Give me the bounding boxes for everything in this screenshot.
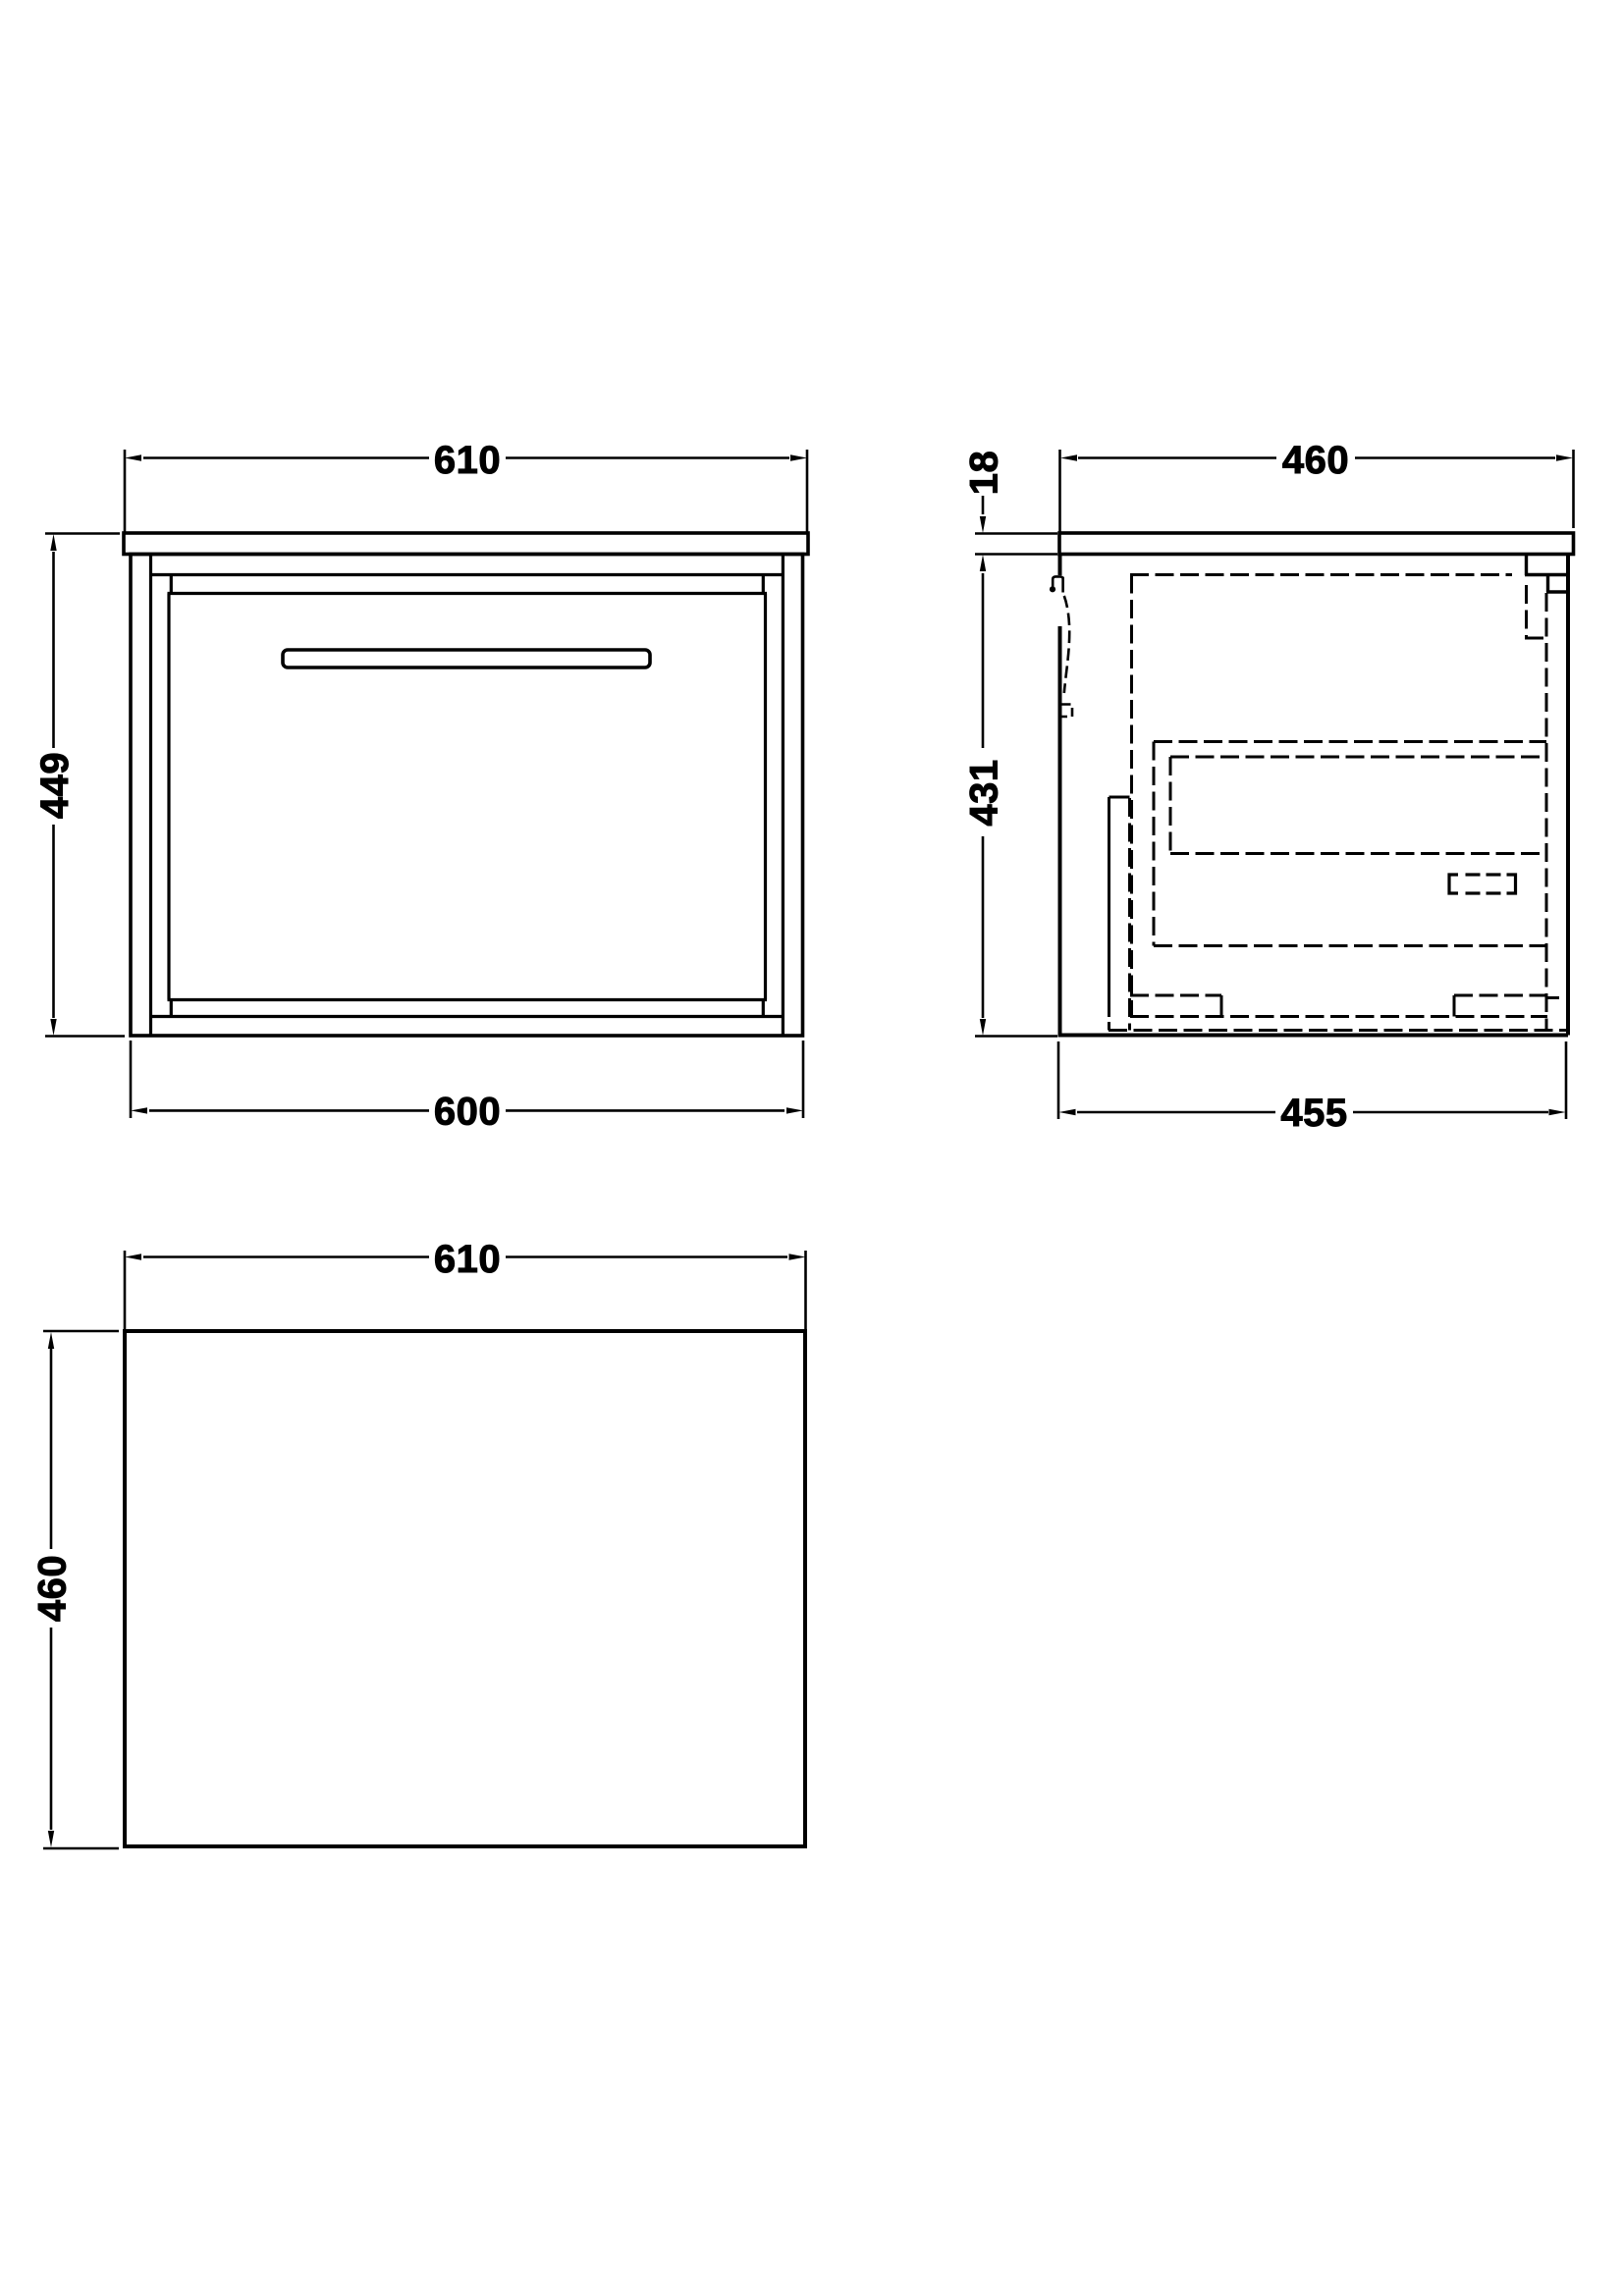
svg-text:18: 18 — [963, 451, 1006, 496]
svg-text:455: 455 — [1280, 1092, 1347, 1135]
svg-text:610: 610 — [434, 439, 501, 482]
svg-text:600: 600 — [434, 1091, 501, 1134]
svg-text:449: 449 — [33, 752, 77, 819]
svg-text:610: 610 — [434, 1238, 501, 1281]
svg-text:431: 431 — [963, 759, 1006, 826]
svg-text:460: 460 — [1282, 439, 1349, 482]
svg-text:460: 460 — [31, 1555, 75, 1622]
